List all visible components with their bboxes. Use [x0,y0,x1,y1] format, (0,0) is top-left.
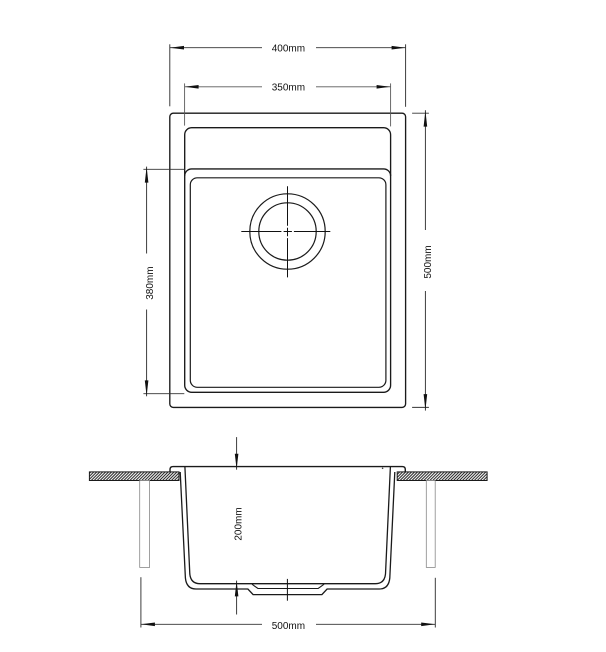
svg-text:200mm: 200mm [234,507,245,540]
svg-text:500mm: 500mm [423,245,434,278]
svg-text:380mm: 380mm [145,266,156,299]
svg-text:350mm: 350mm [272,82,305,93]
svg-text:400mm: 400mm [272,43,305,54]
svg-text:500mm: 500mm [272,621,305,632]
